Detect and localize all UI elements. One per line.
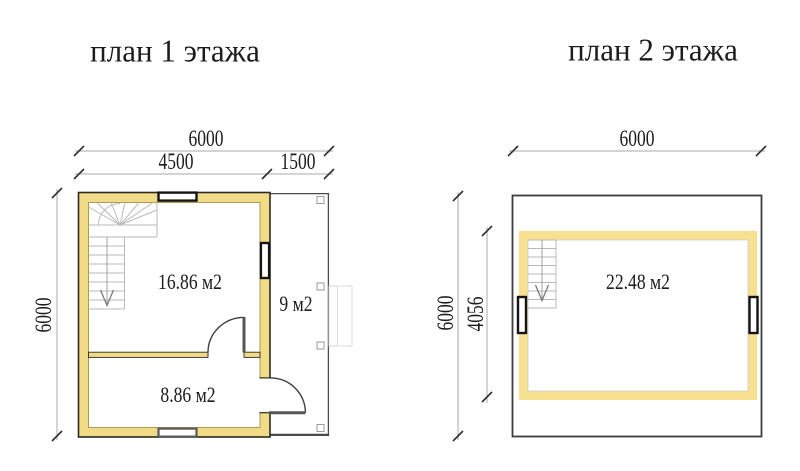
floor1-title: план 1 этажа (90, 33, 260, 70)
floor2-dim-depth: 6000 (433, 296, 459, 331)
floor1-window-north (159, 193, 197, 201)
floor-plan-sheet: план 1 этажа план 2 этажа 6000 4500 1500… (0, 0, 800, 471)
floor1-dim-total-width: 6000 (189, 126, 224, 152)
floor1-porch-posts (317, 197, 324, 432)
floor2-window-west (518, 297, 526, 333)
floor1-door-porch (269, 378, 305, 413)
floor1-room-living-area-label: 16.86 м2 (158, 269, 222, 295)
floor1-partition-wall-right (244, 352, 260, 357)
floor1-dim-house-width: 4500 (159, 149, 194, 175)
floor1-window-south (159, 429, 197, 437)
floor2-title: план 2 этажа (568, 32, 738, 69)
floor1-entry-steps (329, 286, 352, 346)
floor1-room-porch-area-label: 9 м2 (279, 291, 312, 317)
floor1-window-east (261, 243, 269, 278)
floor1-room-hall-area-label: 8.86 м2 (160, 382, 215, 408)
floor2-dim-room-depth: 4056 (463, 297, 489, 332)
floor1-partition-wall-left (89, 352, 209, 357)
floor1-dim-porch-width: 1500 (281, 149, 316, 175)
floor1-dim-depth: 6000 (31, 298, 57, 333)
floor2-room-attic-area-label: 22.48 м2 (606, 269, 670, 295)
floor2-room-floor (528, 240, 748, 391)
floor2-window-east (750, 297, 758, 333)
plan-linework (0, 0, 800, 471)
floor2-drawing (513, 196, 762, 437)
floor2-dim-total-width: 6000 (620, 126, 655, 152)
floor1-porch-door-opening (259, 378, 271, 412)
